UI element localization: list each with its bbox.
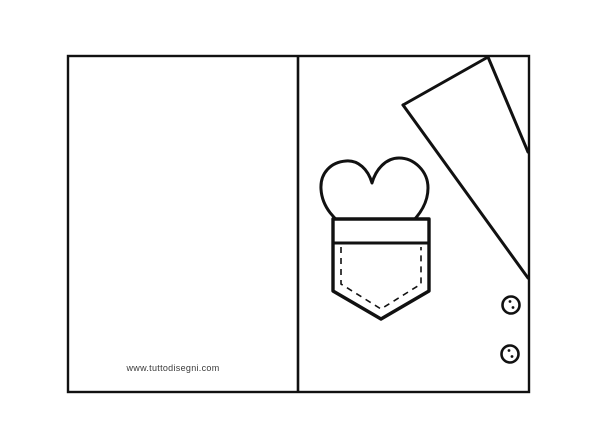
buttonhole-dot	[511, 355, 514, 358]
watermark-text: www.tuttodisegni.com	[125, 363, 219, 373]
buttonhole-dot	[512, 306, 515, 309]
card-template-page: www.tuttodisegni.com	[0, 0, 600, 445]
shirt-button-top	[503, 297, 520, 314]
shirt-button-bottom	[502, 346, 519, 363]
card-template-illustration: www.tuttodisegni.com	[0, 0, 600, 445]
buttonhole-dot	[508, 349, 511, 352]
buttonhole-dot	[509, 300, 512, 303]
